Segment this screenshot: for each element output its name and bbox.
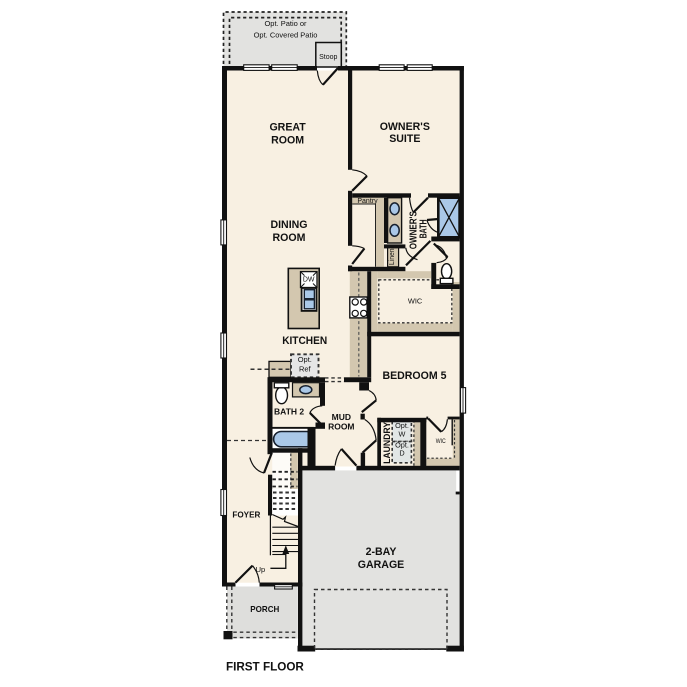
svg-text:WIC: WIC bbox=[436, 438, 446, 445]
svg-text:BATH: BATH bbox=[418, 219, 429, 238]
svg-text:Linen: Linen bbox=[387, 248, 396, 265]
svg-text:DINING: DINING bbox=[270, 219, 307, 231]
svg-text:2-BAY: 2-BAY bbox=[366, 546, 397, 558]
svg-text:LAUNDRY: LAUNDRY bbox=[382, 421, 393, 464]
svg-text:Ref: Ref bbox=[299, 364, 312, 373]
svg-text:GARAGE: GARAGE bbox=[358, 559, 405, 571]
svg-text:BEDROOM 5: BEDROOM 5 bbox=[383, 370, 447, 382]
svg-text:GREAT: GREAT bbox=[269, 122, 306, 134]
svg-text:FIRST FLOOR: FIRST FLOOR bbox=[226, 661, 304, 674]
svg-text:BATH 2: BATH 2 bbox=[274, 407, 304, 417]
svg-text:Stoop: Stoop bbox=[319, 54, 337, 61]
svg-text:Up: Up bbox=[256, 565, 266, 574]
svg-text:FOYER: FOYER bbox=[232, 510, 260, 520]
svg-text:WIC: WIC bbox=[408, 297, 423, 306]
svg-text:ROOM: ROOM bbox=[271, 134, 304, 146]
svg-text:ROOM: ROOM bbox=[273, 232, 306, 244]
svg-text:OWNER'S: OWNER'S bbox=[380, 121, 430, 133]
svg-text:Opt. Covered Patio: Opt. Covered Patio bbox=[254, 30, 318, 39]
svg-text:ROOM: ROOM bbox=[328, 422, 354, 432]
svg-text:W: W bbox=[399, 430, 406, 439]
svg-text:Opt.: Opt. bbox=[298, 355, 312, 364]
svg-text:MUD: MUD bbox=[332, 412, 351, 422]
svg-text:Pantry: Pantry bbox=[357, 198, 378, 205]
svg-text:DW: DW bbox=[303, 277, 315, 284]
svg-text:Opt. Patio or: Opt. Patio or bbox=[264, 19, 307, 28]
svg-text:PORCH: PORCH bbox=[250, 604, 279, 614]
svg-text:SUITE: SUITE bbox=[389, 133, 420, 145]
svg-text:D: D bbox=[399, 449, 404, 458]
svg-text:KITCHEN: KITCHEN bbox=[282, 335, 327, 347]
